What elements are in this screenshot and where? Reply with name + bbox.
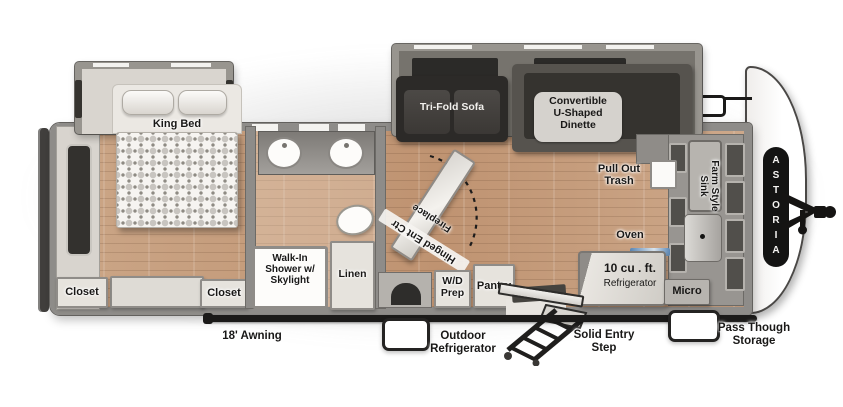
king-bed-mattress [116, 132, 238, 228]
living-slide-wall-highlight [524, 45, 582, 49]
vanity-sink-left [266, 137, 302, 169]
closet-left: Closet [56, 277, 108, 308]
floorplan: King Bed Closet Closet Walk-In Shower w/… [0, 0, 843, 407]
oven-label: Oven [600, 229, 660, 241]
living-slide-wall-highlight [414, 45, 472, 49]
linen-cabinet: Linen [330, 241, 375, 310]
sofa: Tri-Fold Sofa [396, 76, 508, 142]
pillow [122, 90, 174, 115]
dinette-label: Convertible U-Shaped Dinette [534, 96, 622, 131]
range-burner [700, 234, 705, 239]
wd-prep-cabinet: W/D Prep [434, 270, 471, 308]
cabinet-door [725, 181, 745, 215]
pillow [178, 90, 227, 115]
top-wall-window [338, 124, 365, 131]
bedroom-slide-wall-highlight [171, 63, 211, 67]
microwave: Micro [664, 279, 710, 305]
outdoor-kitchen-arch [391, 283, 421, 305]
dresser [110, 276, 204, 308]
rear-window [66, 144, 92, 256]
shower-label: Walk-In Shower w/ Skylight [255, 253, 325, 287]
refrigerator-size-label: 10 cu . ft. [592, 262, 668, 275]
closet-right-label: Closet [202, 287, 246, 299]
closet-left-label: Closet [58, 286, 106, 298]
rear-bumper [38, 128, 49, 312]
refrigerator-label: Refrigerator [592, 278, 668, 289]
awning-label: 18' Awning [198, 330, 306, 343]
front-wall-line [722, 97, 752, 100]
king-bed-label: King Bed [112, 118, 242, 130]
vanity-sink-right [328, 137, 364, 169]
entry-step-label: Solid Entry Step [552, 329, 656, 355]
outdoor-refrigerator-label: Outdoor Refrigerator [406, 330, 520, 356]
top-wall-window [252, 124, 278, 131]
cabinet-door [725, 143, 745, 177]
cabinet-door [725, 219, 745, 253]
closet-right: Closet [200, 279, 248, 308]
shower: Walk-In Shower w/ Skylight [252, 246, 328, 309]
wd-prep-label: W/D Prep [436, 276, 469, 300]
sofa-label: Tri-Fold Sofa [396, 102, 508, 114]
top-wall-skylight [299, 124, 329, 131]
pull-out-trash-label: Pull Out Trash [586, 163, 652, 188]
awning-end-cap [203, 313, 213, 324]
hitch [780, 190, 840, 238]
pass-through-label: Pass Though Storage [698, 322, 810, 348]
refrigerator: 10 cu . ft. Refrigerator [578, 251, 666, 306]
bedroom-slide-wall-highlight [93, 63, 129, 67]
outdoor-kitchen-cabinet [378, 272, 432, 308]
pull-out-trash [650, 160, 677, 189]
cabinet-door [725, 257, 745, 291]
linen-label: Linen [332, 269, 373, 281]
bedroom-slide-window-left [75, 80, 82, 118]
living-slide-wall-highlight [606, 45, 654, 49]
microwave-label: Micro [665, 285, 709, 297]
